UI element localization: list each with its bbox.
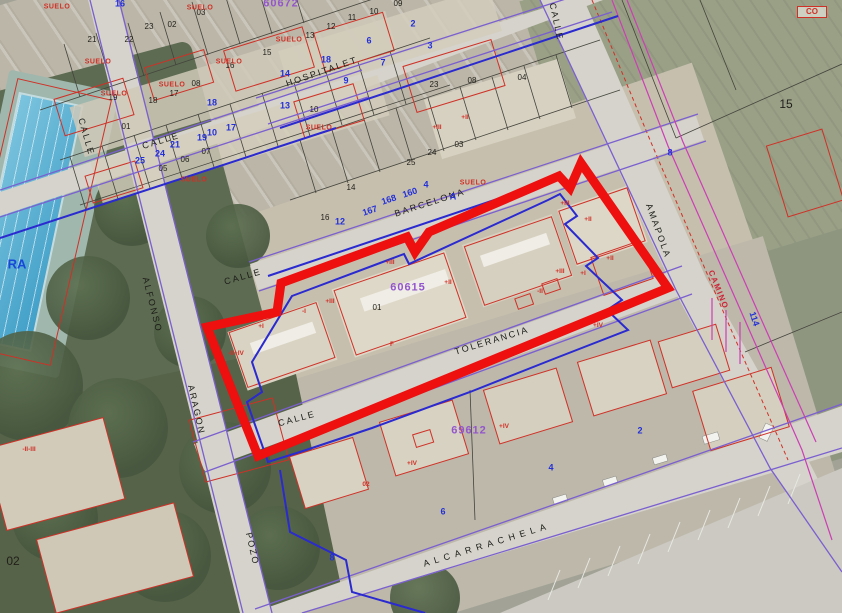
cadastral-map-canvas[interactable]: HOSPITALETBARCELONATOLERANCIAALCARRACHEL… [0,0,842,613]
parcel-number: 03 [455,141,464,149]
building-height-mark: +III [432,125,441,132]
parcel-number: 10 [310,106,319,114]
building-height-mark: +II [584,217,591,224]
parcel-number: 24 [428,149,437,157]
building-height-mark: F [390,342,394,349]
suelo-label: SUELO [187,5,214,12]
parcel-number: 16 [321,214,330,222]
parcel-number: 23 [145,23,154,31]
parcel-number: 11 [348,14,356,22]
suelo-label: SUELO [159,82,186,89]
house-number: 21 [170,141,180,150]
building-height-mark: +III [560,201,569,208]
parcel-number: 06 [181,156,190,164]
building-height-mark: +III [555,269,564,276]
parcel-number: 02 [168,21,177,29]
suelo-label: SUELO [101,91,128,98]
pool-label: RA [8,258,27,271]
suelo-label: SUELO [276,37,303,44]
suelo-label: SUELO [85,59,112,66]
building-height-mark: +IV [593,323,603,330]
street-name-label: CALLE [76,117,95,157]
house-number: 167 [361,204,378,217]
house-number: 168 [380,193,397,206]
house-number: 6 [366,37,371,46]
house-number: 13 [280,102,290,111]
building-height-mark: +IV [499,424,509,431]
house-number: 6 [440,508,445,517]
street-name-label: POZO [244,532,260,567]
house-number: 25 [135,157,145,166]
building-height-mark: +III [385,260,394,267]
street-name-label: ARAGON [186,384,206,436]
parcel-number: 15 [263,49,272,57]
house-number: 12 [335,218,345,227]
house-number: 4 [423,181,428,190]
house-number: 4 [548,464,553,473]
corner-label: CO [797,6,827,18]
suelo-label: SUELO [306,125,333,132]
parcel-number: 15 [779,98,792,110]
block-code-label: 60615 [390,283,426,294]
building-height-mark: +I [580,271,586,278]
parcel-number: 04 [518,74,527,82]
building-height-mark: +II [444,280,451,287]
parcel-number: 21 [88,36,97,44]
building-height-mark: +II [606,256,613,263]
street-name-label: ALFONSO [141,276,164,333]
street-name-label: CALLE [548,2,565,42]
suelo-label: SUELO [44,4,71,11]
house-number: 2 [637,427,642,436]
building-height-mark: +I [258,324,264,331]
building-height-mark: +III [325,299,334,306]
parcel-number: 23 [430,81,439,89]
block-code-label: 60672 [263,0,299,10]
parcel-number: 22 [125,36,134,44]
parcel-number: 08 [468,77,477,85]
house-number: 160 [401,186,418,199]
suelo-label: SUELO [216,59,243,66]
house-number: 3 [427,42,432,51]
parcel-number: 14 [347,184,356,192]
building-height-mark: +IV [407,461,417,468]
house-number: 17 [226,124,236,133]
map-labels: HOSPITALETBARCELONATOLERANCIAALCARRACHEL… [0,0,842,613]
street-name-label: CALLE [277,410,317,429]
street-name-label: CALLE [223,267,263,286]
house-number: 114 [747,311,760,328]
parcel-number: 01 [373,304,382,312]
house-number: 18 [321,56,331,65]
parcel-number: 17 [170,90,179,98]
house-number: 8 [329,554,334,563]
parcel-number: 10 [370,8,379,16]
house-number: 16 [115,0,125,9]
parcel-number: 08 [192,80,201,88]
building-height-mark: -II+IV [228,351,244,358]
parcel-number: 02 [6,555,19,567]
parcel-number: 12 [327,23,336,31]
house-number: 2 [410,20,415,29]
house-number: 9 [343,77,348,86]
suelo-label: SUELO [460,180,487,187]
house-number: A [450,193,457,202]
parcel-number: 05 [159,165,168,173]
house-number: 10 [207,129,217,138]
house-number: 7 [380,59,385,68]
parcel-number: 13 [306,32,315,40]
suelo-label: SUELO [181,177,208,184]
building-height-mark: -I [302,309,306,316]
parcel-number: 18 [149,97,158,105]
house-number: 24 [155,150,165,159]
parcel-number: 01 [122,123,131,131]
building-height-mark: -II [537,289,543,296]
parcel-number: 25 [407,159,416,167]
building-height-mark: +II [461,115,468,122]
building-height-mark: 02 [362,482,369,489]
block-code-label: 69612 [451,426,487,437]
street-name-label: TOLERANCIA [454,325,531,356]
street-name-label: ALCARRACHELA [422,521,551,568]
house-number: 14 [280,70,290,79]
building-height-mark: -II-III [22,447,35,454]
parcel-number: 07 [202,148,211,156]
street-name-label: CAMINO [707,269,730,310]
house-number: 8 [667,149,672,158]
parcel-number: 09 [394,0,403,8]
street-name-label: AMAPOLA [644,202,672,259]
house-number: 19 [197,134,207,143]
house-number: 18 [207,99,217,108]
